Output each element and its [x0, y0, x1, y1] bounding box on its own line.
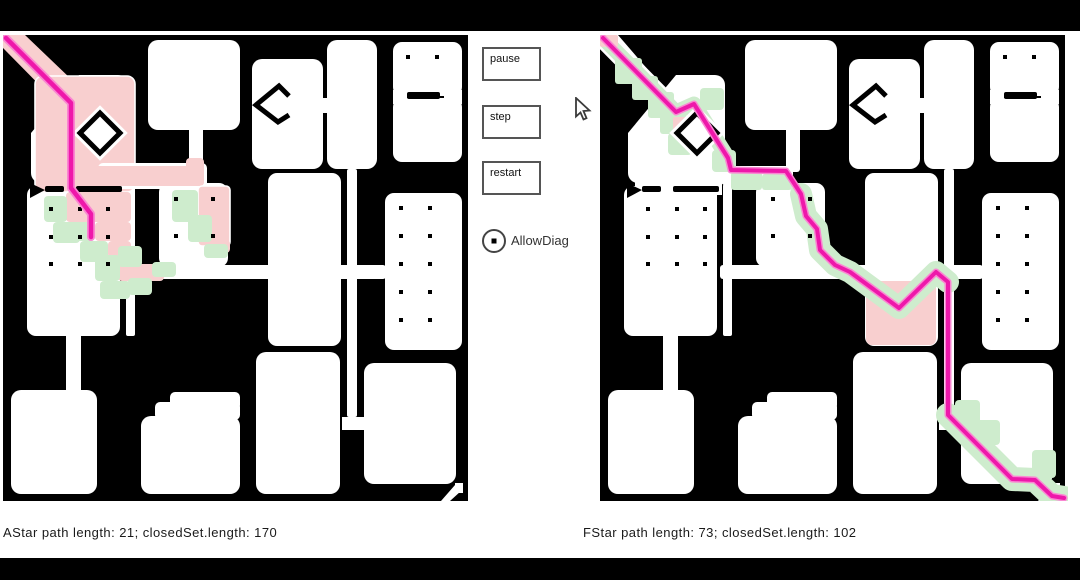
svg-text:AllowDiag: AllowDiag: [511, 233, 569, 248]
